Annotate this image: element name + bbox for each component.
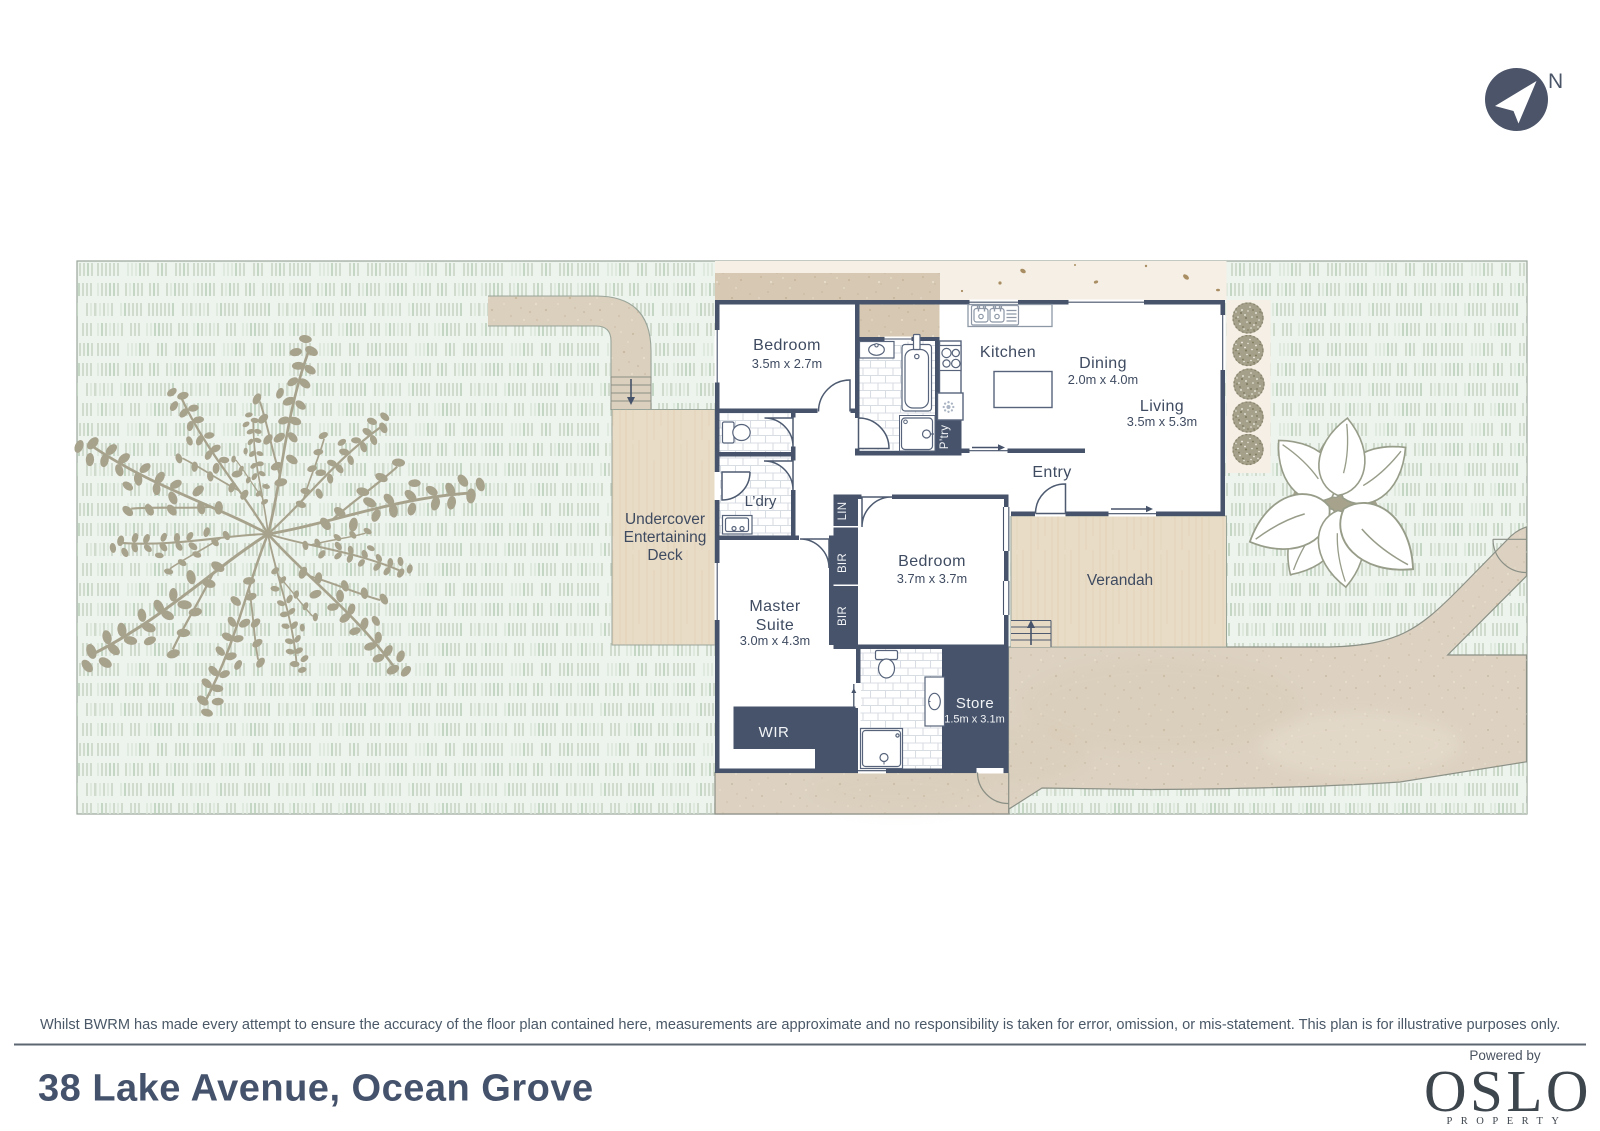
svg-text:38 Lake Avenue, Ocean Grove: 38 Lake Avenue, Ocean Grove	[38, 1068, 594, 1110]
svg-text:BIR: BIR	[837, 553, 849, 573]
svg-text:3.5m x 2.7m: 3.5m x 2.7m	[752, 356, 822, 371]
svg-text:Whilst BWRM has made every at: Whilst BWRM has made every attempt to en…	[40, 1017, 1560, 1033]
svg-text:Bedroom: Bedroom	[898, 553, 966, 570]
svg-text:Store: Store	[956, 695, 994, 712]
svg-text:3.5m x 5.3m: 3.5m x 5.3m	[1127, 414, 1197, 429]
svg-text:LIN: LIN	[837, 502, 849, 521]
svg-text:Dining: Dining	[1079, 355, 1127, 372]
svg-text:Suite: Suite	[756, 617, 794, 634]
svg-text:WIR: WIR	[759, 724, 790, 741]
svg-text:L’dry: L’dry	[745, 493, 777, 510]
svg-text:P’try: P’try	[939, 425, 951, 450]
svg-text:3.0m x 4.3m: 3.0m x 4.3m	[740, 633, 810, 648]
svg-text:Living: Living	[1140, 398, 1184, 415]
svg-text:Deck: Deck	[647, 547, 683, 564]
svg-text:PROPERTY: PROPERTY	[1446, 1116, 1567, 1127]
svg-text:BIR: BIR	[837, 606, 849, 626]
svg-text:Verandah: Verandah	[1087, 572, 1153, 589]
svg-text:Bedroom: Bedroom	[753, 337, 821, 354]
svg-text:Undercover: Undercover	[625, 511, 705, 528]
svg-text:N: N	[1548, 70, 1563, 93]
svg-text:2.0m x 4.0m: 2.0m x 4.0m	[1068, 372, 1138, 387]
svg-text:Master: Master	[749, 598, 801, 615]
svg-text:Kitchen: Kitchen	[980, 344, 1036, 361]
svg-text:Entry: Entry	[1032, 464, 1071, 481]
svg-text:3.7m x 3.7m: 3.7m x 3.7m	[897, 571, 967, 586]
svg-text:1.5m x 3.1m: 1.5m x 3.1m	[944, 714, 1005, 726]
svg-text:Entertaining: Entertaining	[624, 529, 707, 546]
svg-text:OSLO: OSLO	[1424, 1058, 1592, 1124]
